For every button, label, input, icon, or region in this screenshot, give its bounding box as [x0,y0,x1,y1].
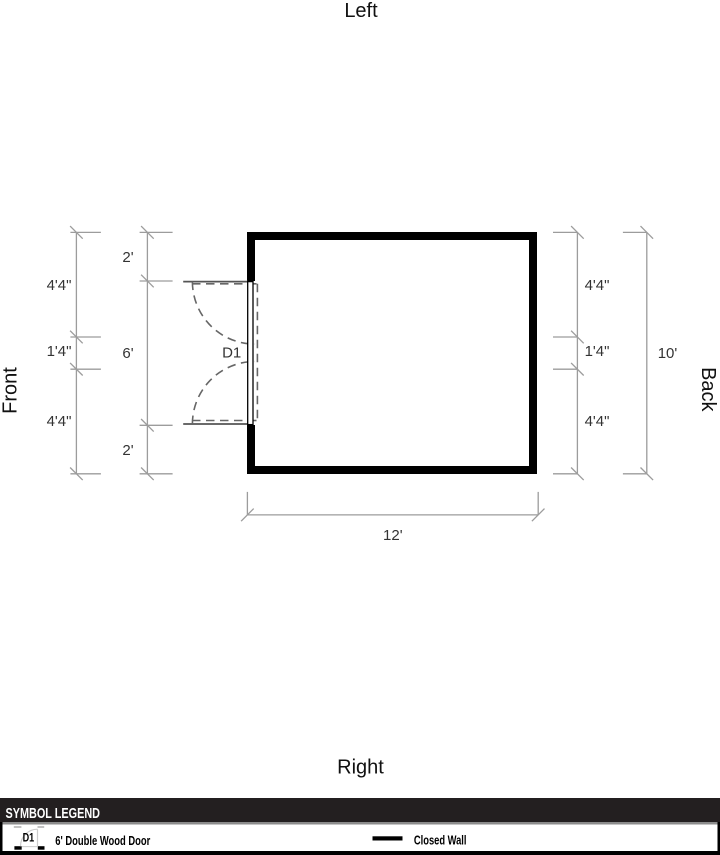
svg-text:Closed Wall: Closed Wall [414,833,467,848]
svg-text:10': 10' [658,345,678,362]
svg-text:2': 2' [122,442,133,459]
svg-text:SYMBOL LEGEND: SYMBOL LEGEND [6,806,101,822]
svg-text:D1: D1 [23,830,35,844]
svg-text:2': 2' [122,249,133,266]
svg-text:4'4": 4'4" [47,413,72,430]
svg-text:Back: Back [697,367,719,412]
svg-text:4'4": 4'4" [47,277,72,294]
svg-text:D1: D1 [222,345,241,362]
svg-text:Right: Right [337,757,384,779]
svg-text:1'4": 1'4" [585,343,610,360]
svg-text:4'4": 4'4" [585,277,610,294]
svg-text:6' Double Wood Door: 6' Double Wood Door [55,833,150,848]
svg-text:1'4": 1'4" [47,343,72,360]
svg-text:Front: Front [0,367,22,414]
svg-text:12': 12' [383,527,403,544]
svg-text:4'4": 4'4" [585,413,610,430]
svg-text:Left: Left [344,0,378,22]
svg-text:6': 6' [122,345,133,362]
